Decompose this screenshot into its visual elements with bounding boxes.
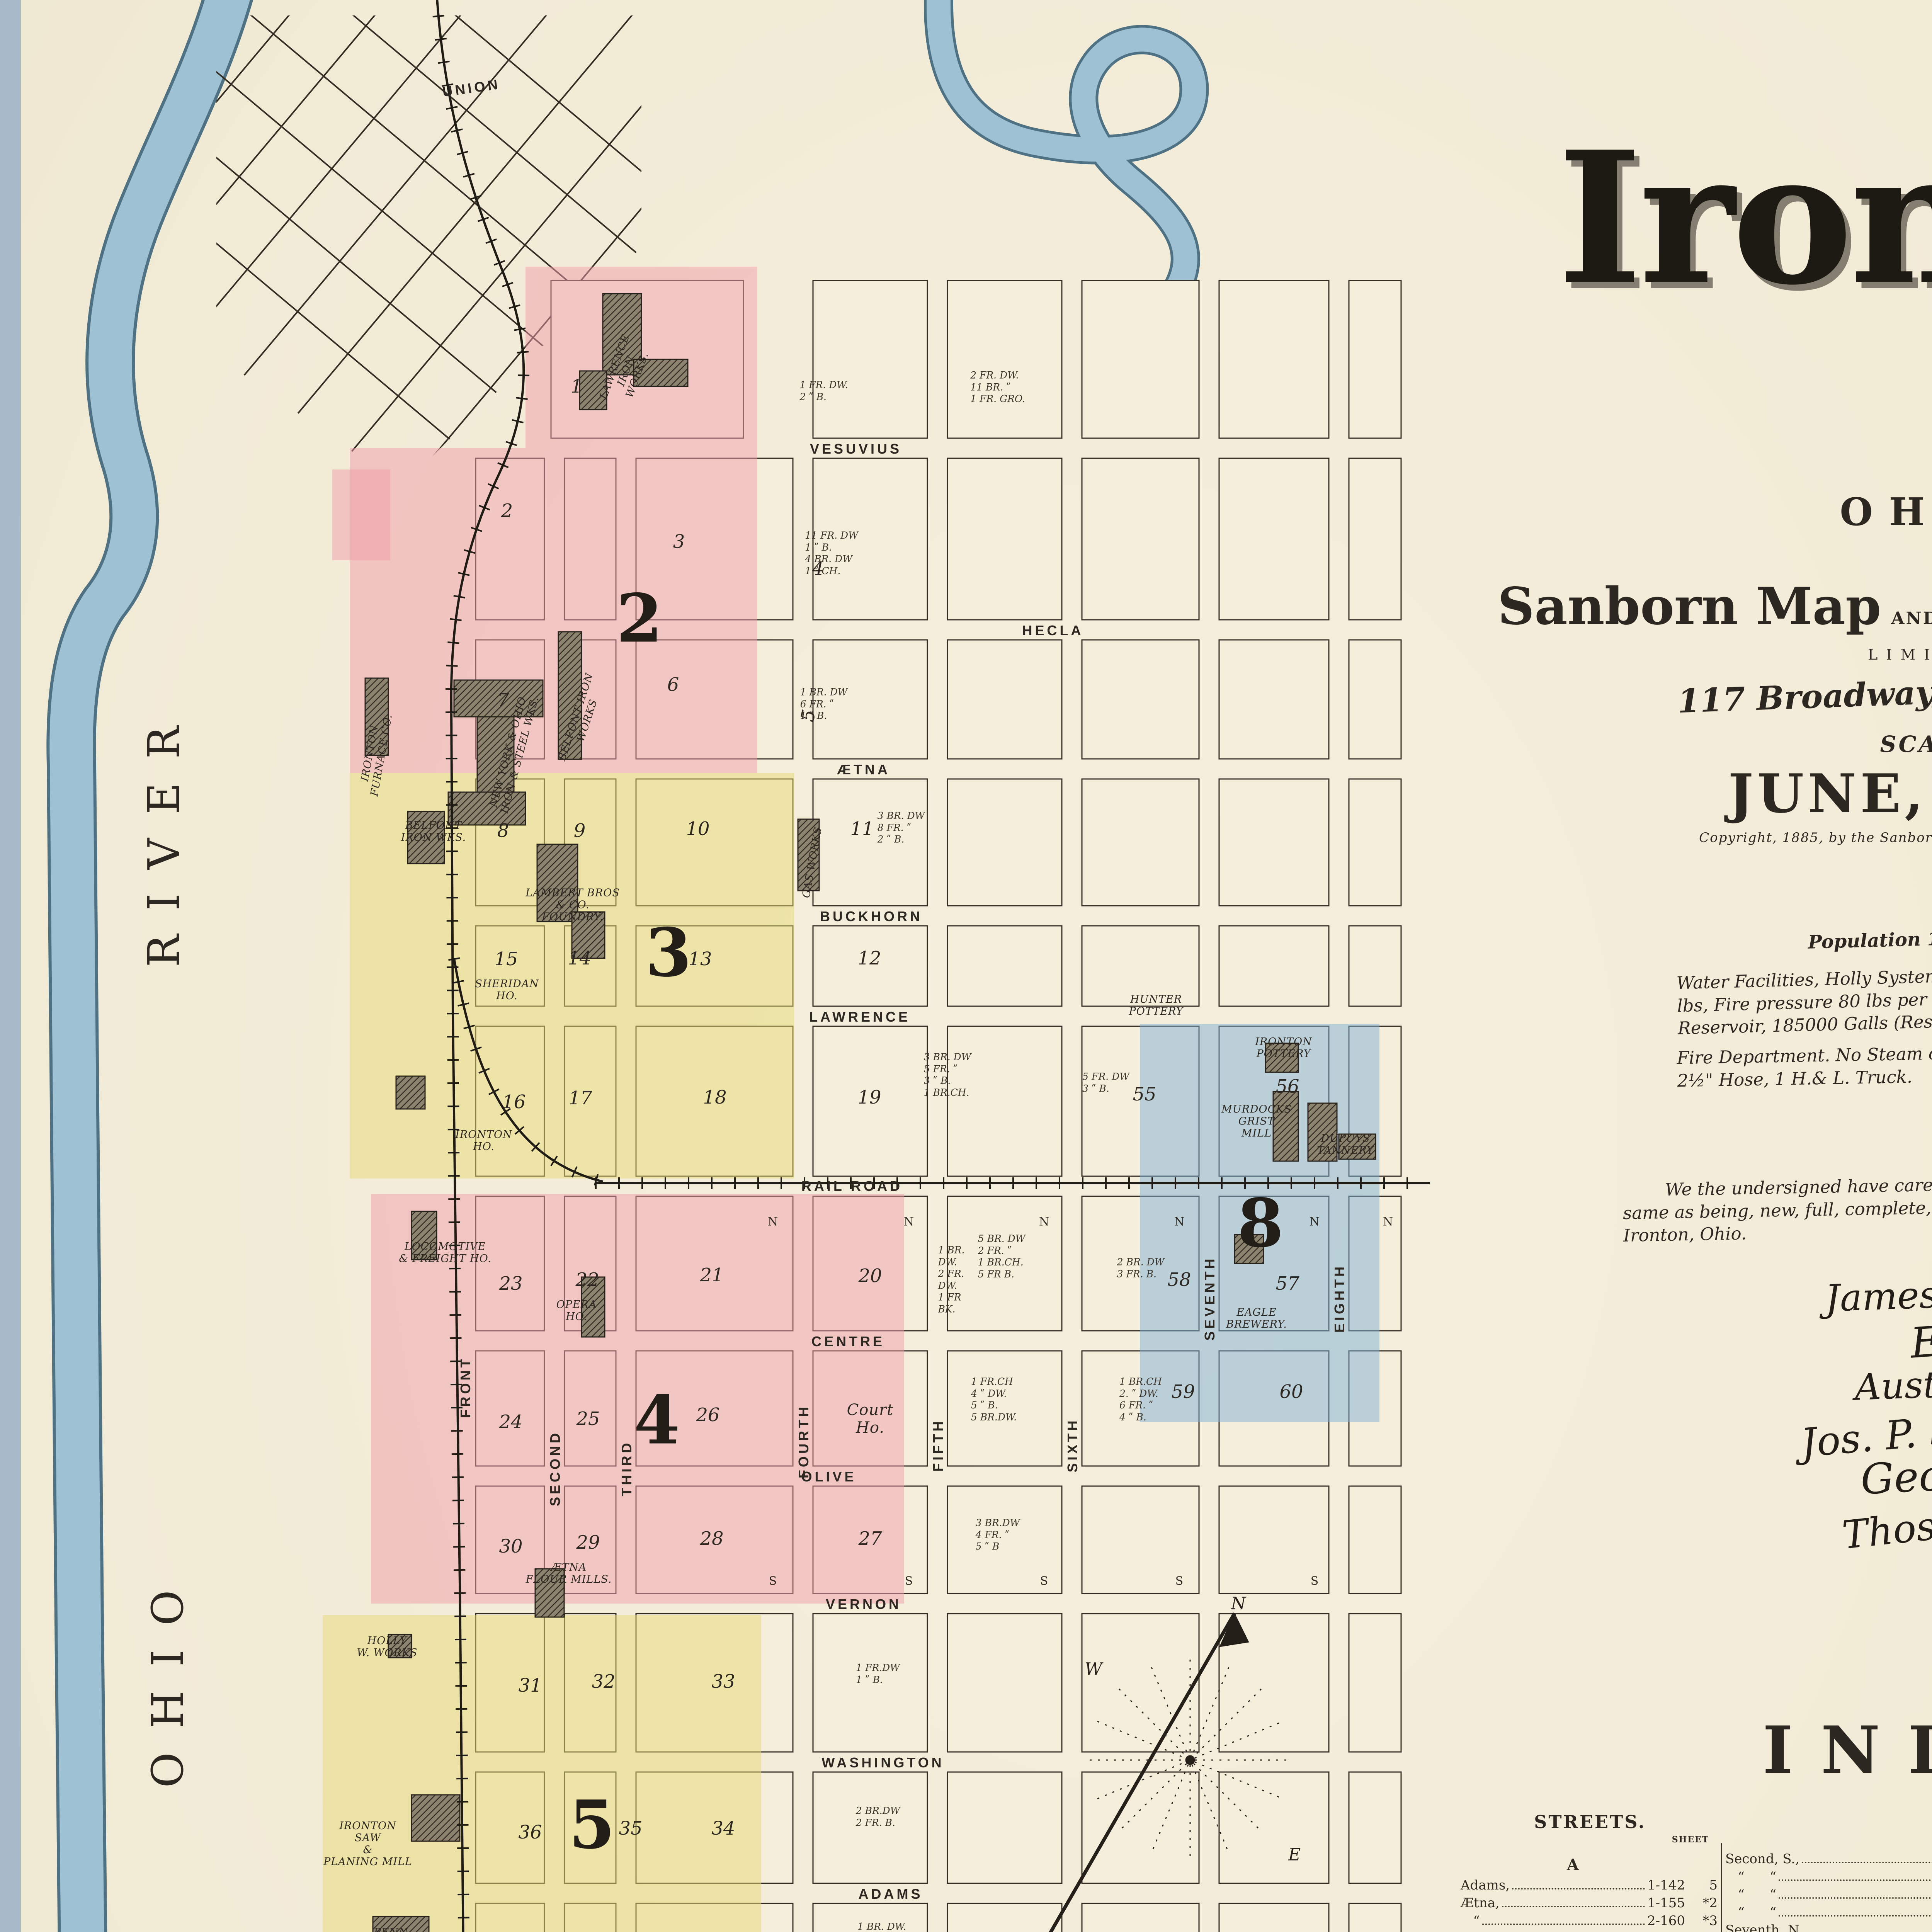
map-date: JUNE, 1885.	[1437, 762, 1932, 825]
map-label: 28	[700, 1528, 723, 1549]
index-table: SHEET SHEET SHEET AAdams,1-1425Ætna,1-15…	[1461, 1712, 1932, 1932]
map-label: 6	[667, 674, 679, 696]
map-label: 58	[1167, 1269, 1191, 1291]
map-label: LOCOMOTIVE & FREIGHT HO.	[399, 1241, 491, 1265]
map-label: 2	[501, 500, 513, 522]
map-label: N	[1310, 1215, 1320, 1229]
map-label: 1 FR. DW. 2 ʺ B.	[799, 379, 848, 403]
publisher-line: Sanborn Map AND Publishing Co.	[1437, 577, 1932, 636]
map-label: LAMBERT BROS & CO. FOUNDRY.	[526, 887, 620, 923]
map-label: VESUVIUS	[810, 441, 902, 457]
map-label: N	[1383, 1215, 1393, 1229]
map-label: S	[1040, 1575, 1048, 1588]
map-label: 36	[518, 1821, 542, 1843]
index-row: “2-160*3	[1461, 1912, 1718, 1930]
index-row: “ “217-2905	[1725, 1868, 1932, 1886]
map-label: 57	[1276, 1273, 1299, 1294]
sanborn-map-sheet: UNIONVESUVIUSHECLAÆTNABUCKHORNLAWRENCERA…	[0, 0, 1932, 1932]
map-label: BUCKHORN	[820, 908, 923, 925]
map-label: N	[768, 1215, 778, 1229]
map-label: N	[1231, 1594, 1246, 1614]
scan-edge-left	[0, 0, 21, 1932]
map-label: EIGHTH	[1332, 1264, 1348, 1333]
map-label: 59	[1171, 1381, 1195, 1403]
map-label: LAWRENCE IRON WORKS.	[597, 333, 655, 409]
map-label: SHERIDAN HO.	[475, 978, 539, 1002]
map-label: 1 BR. DW. 2 FR. DW. 1 FR BK.	[938, 1245, 965, 1315]
map-label: 33	[711, 1671, 735, 1692]
map-label: S	[1311, 1575, 1319, 1588]
signature: James S. Peters	[1824, 1267, 1932, 1320]
map-label: 15	[494, 948, 518, 970]
map-label: 16	[502, 1091, 526, 1113]
index-row: “ “404-4837	[1725, 1903, 1932, 1921]
page-title: Ironton	[1437, 128, 1932, 309]
map-label: 30	[499, 1536, 522, 1557]
map-label: 5 FR. DW 3 ʺ B.	[1082, 1071, 1129, 1095]
map-label: 22	[575, 1269, 599, 1291]
map-label: S	[1175, 1575, 1184, 1588]
map-label: 8	[1237, 1184, 1284, 1262]
publisher-part1: Sanborn Map	[1498, 577, 1881, 636]
map-label: 2 BR.DW 2 FR. B.	[856, 1805, 900, 1829]
map-label: 60	[1279, 1381, 1303, 1403]
map-label: 9	[574, 820, 586, 842]
city-statistics: Population 12000, Prevailing Winds W.&S.…	[1677, 925, 1932, 1086]
map-label: HOLLY W. WORKS	[357, 1635, 417, 1659]
map-label: 1 BR. DW 6 FR. ʺ 1 ʺ B.	[800, 686, 848, 722]
index-row: Ætna,1-155*2	[1461, 1894, 1718, 1912]
index-row: Second, S.,169-2164	[1725, 1850, 1932, 1868]
map-label: 4	[634, 1381, 680, 1459]
index-row: Adams,1-1425	[1461, 1876, 1718, 1894]
map-label: FIFTH	[930, 1419, 946, 1472]
map-label: Court Ho.	[847, 1401, 894, 1437]
map-label: RIVER	[139, 702, 189, 967]
map-label: 1 BR. DW. 1 FR. B.	[857, 1921, 906, 1932]
sheet-header-col1: SHEET	[1662, 1835, 1719, 1845]
map-label: BELFONT IRON WORKS	[556, 672, 607, 766]
map-label: 55	[1133, 1083, 1156, 1105]
map-label: 35	[619, 1818, 642, 1839]
map-label: THIRD	[619, 1440, 635, 1497]
map-label: 21	[700, 1264, 723, 1286]
map-label: OPERA HO.	[556, 1299, 597, 1323]
map-label: 10	[686, 818, 709, 840]
map-label: 31	[518, 1675, 542, 1696]
map-label: IRONTON HO.	[455, 1129, 512, 1153]
map-label: FOURTH	[796, 1404, 812, 1478]
map-label: N	[904, 1215, 914, 1229]
map-label: 3	[645, 913, 692, 992]
map-label: E	[1288, 1845, 1301, 1865]
map-label: 25	[576, 1408, 600, 1430]
limited-label: LIMITED	[1437, 646, 1932, 663]
map-label: NEW YORK & OHIO IRON & STEEL WKS.	[487, 692, 541, 815]
place-date-line: Ironton, Ohio, June, 1885	[1874, 1140, 1932, 1162]
map-label: N	[1174, 1215, 1184, 1229]
endorsement-paragraph: We the undersigned have carefully examin…	[1622, 1166, 1932, 1247]
map-label: 2	[616, 579, 663, 658]
map-label: 1 BR.CH 2. ʺ DW. 6 FR. ʺ 4 ʺ B.	[1119, 1376, 1162, 1423]
map-label: 1	[571, 376, 583, 397]
map-label: S	[769, 1575, 777, 1588]
map-label: GAS WORKS	[800, 826, 825, 899]
map-label: S	[905, 1575, 913, 1588]
index-row: Seventh, N.,121-1708	[1725, 1921, 1932, 1932]
map-label: 3 BR.DW 4 FR. ʺ 5 ʺ B	[976, 1517, 1020, 1553]
map-label: 13	[688, 948, 712, 970]
map-label: IRONTON FURNACE CO.	[357, 711, 395, 797]
map-label: LAWRENCE	[809, 1009, 910, 1025]
map-label: 32	[592, 1671, 615, 1692]
map-label: 3 BR. DW 5 FR. ʺ 3 ʺ B. 1 BR.CH.	[924, 1051, 971, 1099]
map-label: ÆTNA FLOUR MILLS.	[526, 1561, 612, 1585]
map-label: 1 FR.DW 1 ʺ B.	[856, 1662, 900, 1686]
map-label: UNION	[441, 76, 501, 100]
map-label: FRONT	[457, 1357, 474, 1418]
map-label: W	[1085, 1660, 1102, 1679]
map-label: 24	[499, 1411, 522, 1433]
copyright-line: Copyright, 1885, by the Sanborn Map & Pu…	[1437, 830, 1932, 845]
index-column-2: Second, S.,169-2164 “ “217-2905 “ “291-3…	[1725, 1850, 1932, 1932]
map-label: SIXTH	[1065, 1418, 1081, 1472]
map-label: ÆTNA	[837, 762, 890, 778]
map-label: 11	[850, 818, 874, 840]
map-label: 12	[857, 947, 881, 969]
state-label: OHIO	[1437, 490, 1932, 534]
map-label: 11 FR. DW 1 ʺ B. 4 BR. DW 1 ʺ CH.	[805, 530, 858, 577]
map-label: 8	[497, 820, 509, 842]
signature: Austin & Kelley	[1854, 1357, 1932, 1409]
map-label: 5 BR. DW 2 FR. ʺ 1 BR.CH. 5 FR B.	[978, 1233, 1026, 1280]
map-label: ADAMS	[859, 1886, 923, 1902]
index-column-rule	[1721, 1843, 1722, 1932]
map-label: 3	[673, 531, 685, 553]
map-label: 26	[696, 1404, 719, 1426]
map-label: DUPUYS TANNERY	[1317, 1133, 1374, 1156]
index-row: “ “291-3186	[1725, 1886, 1932, 1903]
map-label: 27	[858, 1528, 882, 1549]
publisher-and: AND	[1891, 609, 1932, 628]
map-label: IRONTON SAW & PLANING MILL	[323, 1820, 412, 1868]
map-label: WASHINGTON	[821, 1755, 944, 1771]
index-row: A	[1461, 1856, 1718, 1876]
map-label: 2 BR. DW 3 FR. B.	[1117, 1257, 1165, 1280]
map-label: MURDOCKS GRIST MILL	[1221, 1103, 1292, 1139]
map-label: 23	[499, 1273, 522, 1294]
map-label: 3 BR. DW 8 FR. ʺ 2 ʺ B.	[878, 810, 925, 845]
map-label: SECOND	[547, 1430, 563, 1506]
map-label: 20	[858, 1265, 882, 1287]
map-label: RAIL ROAD	[801, 1178, 903, 1194]
map-label: 56	[1276, 1076, 1299, 1097]
map-label: 1 FR.CH 4 ʺ DW. 5 ʺ B. 5 BR.DW.	[971, 1376, 1017, 1423]
map-label: IRONTON POTTERY	[1255, 1036, 1312, 1060]
map-label: 29	[576, 1532, 600, 1553]
map-label: 2 FR. DW. 11 BR. ʺ 1 FR. GRO.	[970, 369, 1025, 405]
map-label: HUNTER POTTERY	[1129, 993, 1184, 1017]
index-column-1: AAdams,1-1425Ætna,1-155*2 “2-160*3BBuckh…	[1461, 1851, 1718, 1932]
map-label: 18	[703, 1087, 726, 1108]
water-facilities-note: Water Facilities, Holly System. 116 Hydt…	[1676, 953, 1932, 1040]
map-label: N	[1039, 1215, 1049, 1229]
map-label: 7	[497, 689, 509, 711]
map-label: 34	[711, 1818, 735, 1839]
fire-department-note: Fire Department. No Steam or Hand Engine…	[1677, 1034, 1932, 1092]
map-label: BELFONT IRON WKS.	[401, 820, 466, 844]
map-label: PENN LUMBER CO.	[366, 1926, 417, 1932]
signature-list: James S. PetersE. BixbyAustin & KelleyJo…	[1708, 1271, 1932, 1549]
map-label: SEVENTH	[1202, 1256, 1218, 1340]
map-label: CENTRE	[811, 1333, 885, 1350]
map-labels: UNIONVESUVIUSHECLAÆTNABUCKHORNLAWRENCERA…	[0, 0, 1453, 1932]
map-label: 17	[568, 1087, 592, 1109]
map-label: 19	[857, 1087, 881, 1108]
map-label: VERNON	[826, 1596, 901, 1612]
map-label: HECLA	[1022, 622, 1084, 639]
map-label: EAGLE BREWERY.	[1226, 1306, 1287, 1330]
scale-note: SCALE 50 FT TO AN INCH	[1692, 731, 1932, 757]
map-label: OHIO	[143, 1566, 193, 1788]
map-label: 14	[568, 947, 591, 969]
map-label: 5	[569, 1786, 615, 1864]
